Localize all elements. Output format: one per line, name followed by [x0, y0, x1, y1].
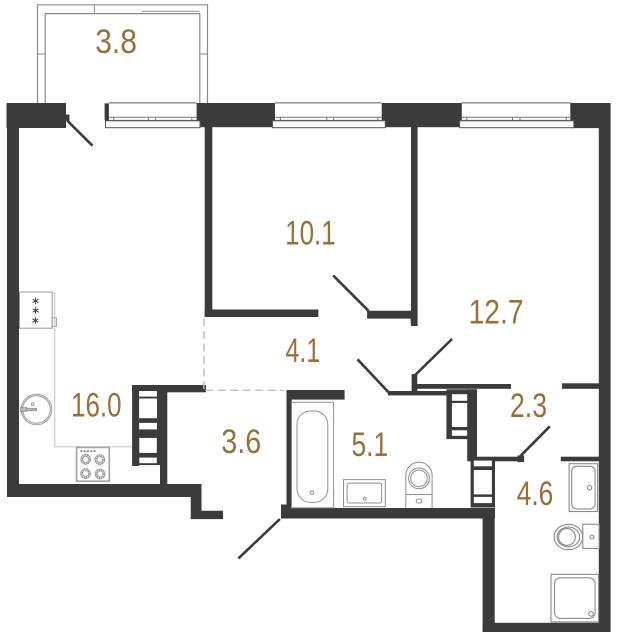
svg-text:2.3: 2.3: [510, 387, 547, 425]
svg-text:4.1: 4.1: [286, 332, 321, 370]
svg-text:12.7: 12.7: [469, 294, 524, 332]
svg-text:3.8: 3.8: [95, 23, 137, 61]
svg-text:4.6: 4.6: [517, 475, 554, 513]
svg-text:16.0: 16.0: [71, 387, 122, 425]
svg-text:3.6: 3.6: [221, 423, 261, 461]
svg-text:5.1: 5.1: [351, 426, 388, 464]
svg-text:10.1: 10.1: [285, 214, 336, 252]
